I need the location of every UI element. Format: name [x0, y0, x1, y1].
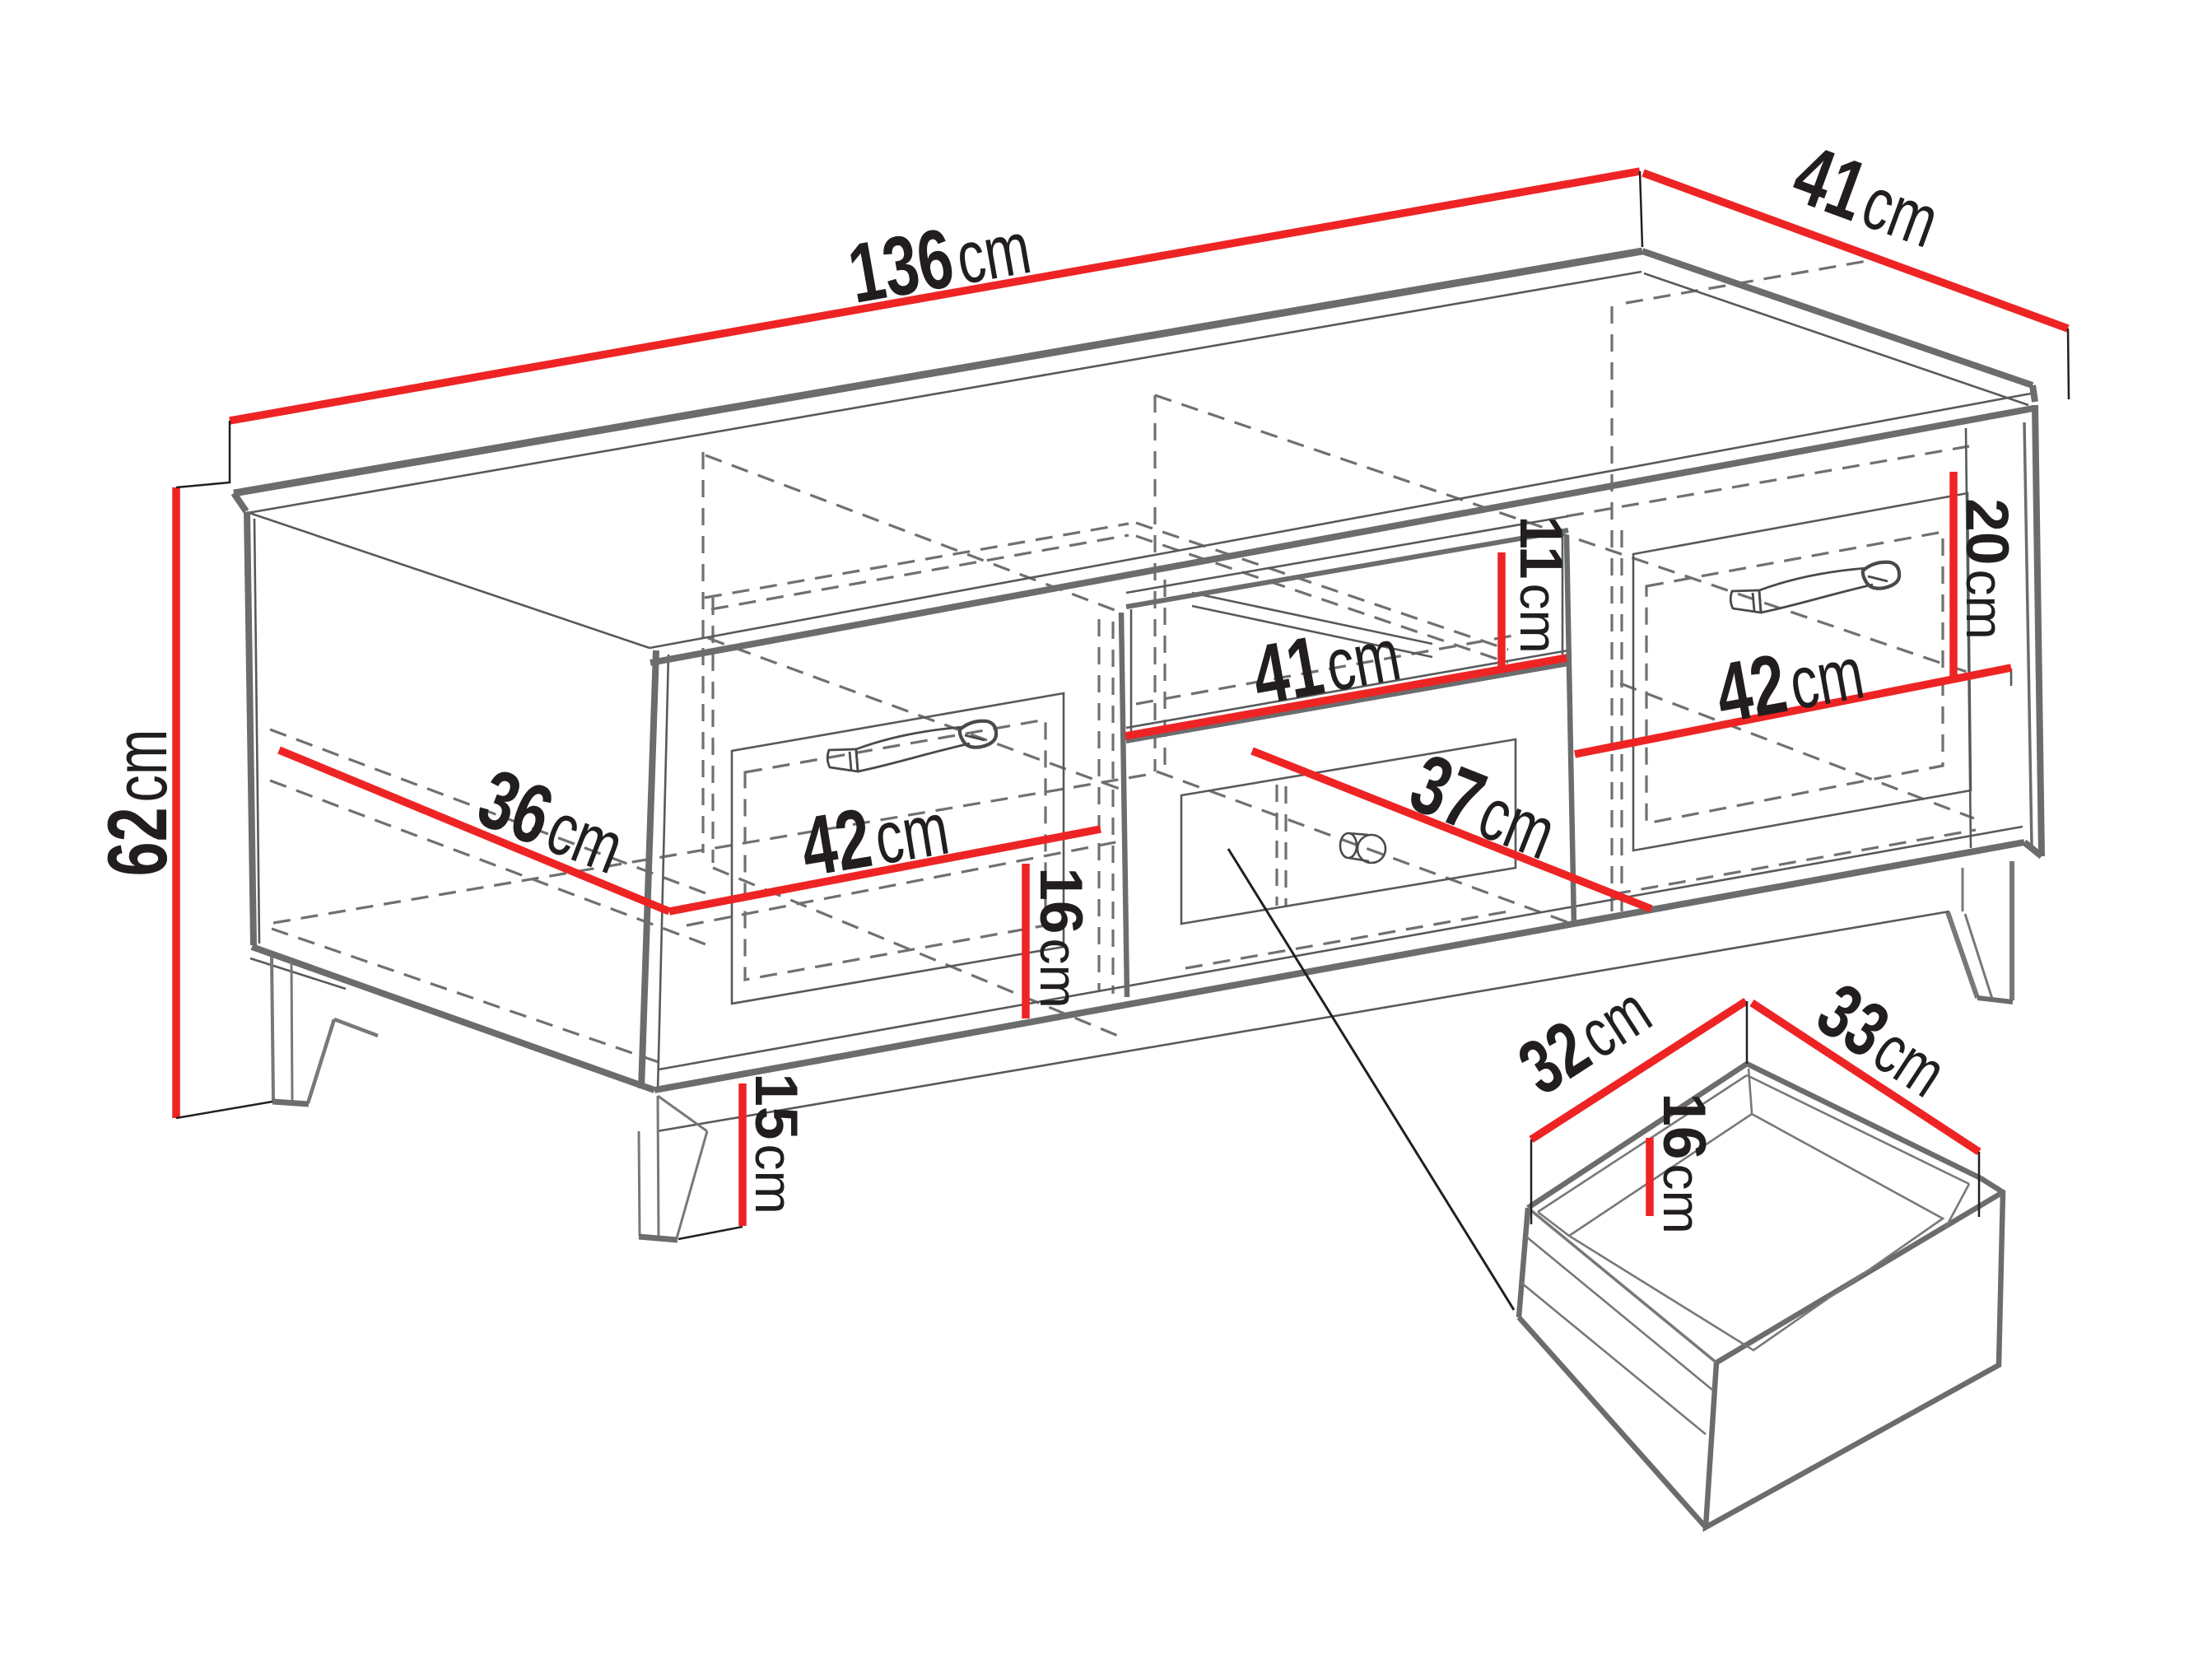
svg-text:11cm: 11cm	[1507, 515, 1574, 653]
svg-text:16cm: 16cm	[1027, 867, 1094, 1009]
svg-text:20cm: 20cm	[1954, 498, 2020, 640]
svg-text:62cm: 62cm	[91, 729, 185, 877]
svg-text:15cm: 15cm	[743, 1073, 809, 1214]
svg-text:16cm: 16cm	[1651, 1093, 1717, 1234]
